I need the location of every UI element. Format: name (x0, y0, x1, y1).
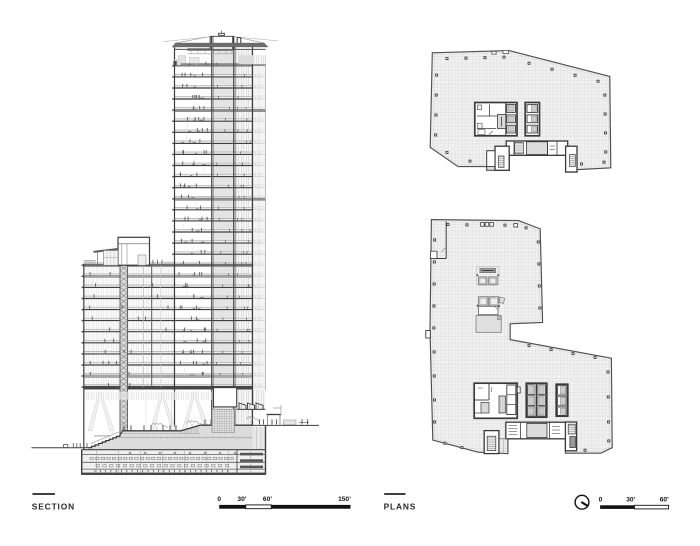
svg-text:0: 0 (217, 496, 221, 503)
svg-text:60’: 60’ (263, 496, 272, 503)
svg-text:150’: 150’ (338, 496, 351, 503)
svg-text:SECTION: SECTION (32, 501, 75, 511)
svg-text:0: 0 (599, 497, 603, 504)
svg-text:60’: 60’ (660, 497, 669, 504)
svg-text:PLANS: PLANS (384, 501, 417, 511)
svg-text:30’: 30’ (237, 496, 246, 503)
svg-text:30’: 30’ (626, 497, 635, 504)
